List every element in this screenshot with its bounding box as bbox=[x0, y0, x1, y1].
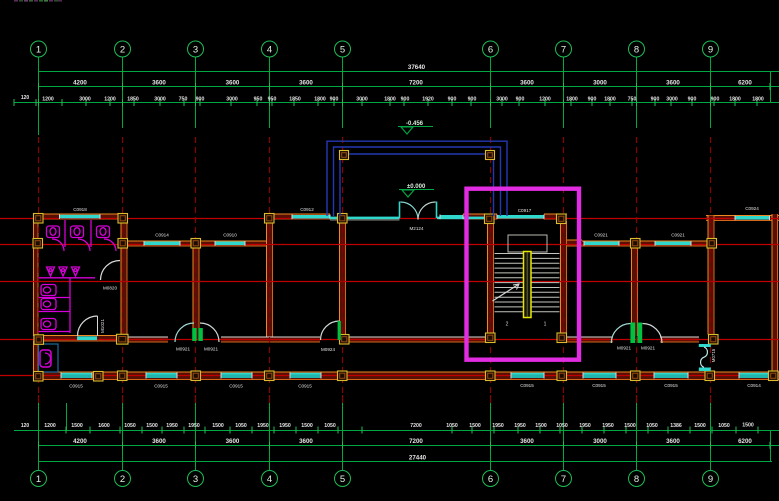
svg-text:1950: 1950 bbox=[602, 423, 614, 429]
svg-text:1850: 1850 bbox=[289, 97, 301, 103]
svg-text:C0921: C0921 bbox=[671, 233, 685, 238]
svg-text:C0915: C0915 bbox=[69, 384, 83, 389]
svg-text:3600: 3600 bbox=[299, 80, 313, 87]
svg-text:1800: 1800 bbox=[752, 97, 764, 103]
svg-text:2: 2 bbox=[120, 474, 125, 485]
svg-text:1500: 1500 bbox=[694, 423, 706, 429]
svg-text:6: 6 bbox=[488, 474, 493, 485]
svg-text:1950: 1950 bbox=[166, 423, 178, 429]
svg-text:C0915: C0915 bbox=[229, 384, 243, 389]
svg-text:C0915: C0915 bbox=[520, 383, 534, 388]
svg-text:1800: 1800 bbox=[384, 97, 396, 103]
svg-text:1500: 1500 bbox=[469, 423, 481, 429]
svg-text:37640: 37640 bbox=[408, 64, 426, 71]
svg-text:900: 900 bbox=[448, 97, 457, 103]
svg-text:3600: 3600 bbox=[666, 438, 680, 445]
svg-text:C0924: C0924 bbox=[745, 206, 759, 211]
svg-text:M0924: M0924 bbox=[321, 347, 335, 352]
svg-text:M0921: M0921 bbox=[617, 346, 631, 351]
svg-text:3000: 3000 bbox=[666, 97, 678, 103]
svg-text:4200: 4200 bbox=[73, 438, 87, 445]
svg-text:1800: 1800 bbox=[314, 97, 326, 103]
svg-text:1950: 1950 bbox=[188, 423, 200, 429]
svg-text:4200: 4200 bbox=[73, 80, 87, 87]
svg-text:C0914: C0914 bbox=[747, 383, 761, 388]
svg-text:3600: 3600 bbox=[152, 80, 166, 87]
svg-text:M0921: M0921 bbox=[176, 347, 190, 352]
svg-text:1500: 1500 bbox=[146, 423, 158, 429]
svg-text:M0921: M0921 bbox=[641, 346, 655, 351]
svg-text:3000: 3000 bbox=[154, 97, 166, 103]
svg-text:900: 900 bbox=[588, 97, 597, 103]
svg-text:8: 8 bbox=[634, 474, 639, 485]
svg-text:1950: 1950 bbox=[579, 423, 591, 429]
svg-text:1050: 1050 bbox=[235, 423, 247, 429]
svg-text:3: 3 bbox=[193, 474, 198, 485]
svg-text:1050: 1050 bbox=[324, 423, 336, 429]
svg-text:C0921: C0921 bbox=[594, 233, 608, 238]
svg-text:4: 4 bbox=[267, 45, 272, 56]
svg-text:1500: 1500 bbox=[71, 423, 83, 429]
svg-text:1050: 1050 bbox=[646, 423, 658, 429]
svg-text:3000: 3000 bbox=[593, 438, 607, 445]
svg-text:9: 9 bbox=[708, 45, 713, 56]
svg-text:1500: 1500 bbox=[301, 423, 313, 429]
svg-text:7200: 7200 bbox=[409, 438, 423, 445]
svg-text:900: 900 bbox=[711, 97, 720, 103]
svg-text:6200: 6200 bbox=[738, 438, 752, 445]
svg-text:6200: 6200 bbox=[738, 80, 752, 87]
svg-text:1950: 1950 bbox=[279, 423, 291, 429]
svg-text:1800: 1800 bbox=[566, 97, 578, 103]
svg-text:2: 2 bbox=[120, 45, 125, 56]
svg-text:900: 900 bbox=[401, 97, 410, 103]
svg-text:1920: 1920 bbox=[422, 97, 434, 103]
svg-text:M0820: M0820 bbox=[103, 286, 117, 291]
svg-text:1386: 1386 bbox=[670, 423, 682, 429]
svg-text:3000: 3000 bbox=[226, 97, 238, 103]
svg-text:3600: 3600 bbox=[299, 438, 313, 445]
svg-text:1050: 1050 bbox=[718, 423, 730, 429]
svg-text:3600: 3600 bbox=[520, 80, 534, 87]
svg-text:1500: 1500 bbox=[212, 423, 224, 429]
svg-text:1800: 1800 bbox=[729, 97, 741, 103]
svg-text:900: 900 bbox=[468, 97, 477, 103]
svg-text:M2124: M2124 bbox=[409, 226, 423, 231]
svg-text:950: 950 bbox=[268, 97, 277, 103]
svg-text:900: 900 bbox=[196, 97, 205, 103]
svg-text:8: 8 bbox=[634, 45, 639, 56]
svg-text:C0915: C0915 bbox=[664, 383, 678, 388]
svg-text:900: 900 bbox=[651, 97, 660, 103]
svg-text:3000: 3000 bbox=[79, 97, 91, 103]
svg-text:1200: 1200 bbox=[539, 97, 551, 103]
svg-text:7200: 7200 bbox=[410, 423, 422, 429]
svg-text:3600: 3600 bbox=[520, 438, 534, 445]
svg-text:1600: 1600 bbox=[98, 423, 110, 429]
svg-text:C0910: C0910 bbox=[223, 233, 237, 238]
svg-text:3600: 3600 bbox=[666, 80, 680, 87]
svg-text:1200: 1200 bbox=[104, 97, 116, 103]
svg-text:900: 900 bbox=[330, 97, 339, 103]
svg-text:C0914: C0914 bbox=[155, 233, 169, 238]
svg-text:6: 6 bbox=[488, 45, 493, 56]
svg-text:1: 1 bbox=[36, 474, 41, 485]
svg-text:3000: 3000 bbox=[356, 97, 368, 103]
svg-text:120: 120 bbox=[21, 423, 30, 429]
svg-text:M0921: M0921 bbox=[204, 347, 218, 352]
svg-text:3: 3 bbox=[193, 45, 198, 56]
svg-text:3600: 3600 bbox=[226, 80, 240, 87]
svg-text:3000: 3000 bbox=[593, 80, 607, 87]
svg-text:1200: 1200 bbox=[44, 423, 56, 429]
svg-text:1800: 1800 bbox=[604, 97, 616, 103]
svg-text:950: 950 bbox=[254, 97, 263, 103]
svg-text:3000: 3000 bbox=[496, 97, 508, 103]
svg-text:900: 900 bbox=[516, 97, 525, 103]
svg-text:C0918: C0918 bbox=[73, 207, 87, 212]
svg-text:1050: 1050 bbox=[124, 423, 136, 429]
svg-text:C0915: C0915 bbox=[298, 384, 312, 389]
svg-text:27440: 27440 bbox=[409, 454, 427, 461]
svg-text:1050: 1050 bbox=[446, 423, 458, 429]
svg-text:3600: 3600 bbox=[152, 438, 166, 445]
svg-text:C0917: C0917 bbox=[518, 208, 532, 213]
svg-text:7: 7 bbox=[561, 474, 566, 485]
svg-text:120: 120 bbox=[21, 95, 30, 101]
svg-text:1500: 1500 bbox=[624, 423, 636, 429]
svg-text:M0715: M0715 bbox=[711, 348, 716, 362]
svg-text:750: 750 bbox=[628, 97, 637, 103]
svg-text:900: 900 bbox=[688, 97, 697, 103]
svg-text:9: 9 bbox=[708, 474, 713, 485]
svg-text:1200: 1200 bbox=[42, 97, 54, 103]
svg-text:1950: 1950 bbox=[514, 423, 526, 429]
svg-text:C0912: C0912 bbox=[300, 207, 314, 212]
svg-text:7200: 7200 bbox=[409, 80, 423, 87]
svg-text:7: 7 bbox=[561, 45, 566, 56]
svg-text:5: 5 bbox=[340, 45, 345, 56]
svg-text:750: 750 bbox=[179, 97, 188, 103]
svg-text:1: 1 bbox=[544, 322, 547, 328]
svg-text:1: 1 bbox=[36, 45, 41, 56]
svg-text:-0.456: -0.456 bbox=[406, 121, 424, 127]
svg-text:1850: 1850 bbox=[127, 97, 139, 103]
svg-text:C0915: C0915 bbox=[592, 383, 606, 388]
svg-text:1500: 1500 bbox=[742, 423, 754, 429]
svg-text:1050: 1050 bbox=[556, 423, 568, 429]
svg-text:±0.000: ±0.000 bbox=[407, 184, 426, 190]
svg-text:2: 2 bbox=[506, 322, 509, 328]
svg-text:M1021: M1021 bbox=[100, 319, 105, 333]
svg-text:4: 4 bbox=[267, 474, 272, 485]
svg-text:1950: 1950 bbox=[257, 423, 269, 429]
svg-text:3600: 3600 bbox=[226, 438, 240, 445]
svg-text:1950: 1950 bbox=[492, 423, 504, 429]
svg-text:5: 5 bbox=[340, 474, 345, 485]
svg-text:1500: 1500 bbox=[535, 423, 547, 429]
svg-text:C0915: C0915 bbox=[154, 384, 168, 389]
